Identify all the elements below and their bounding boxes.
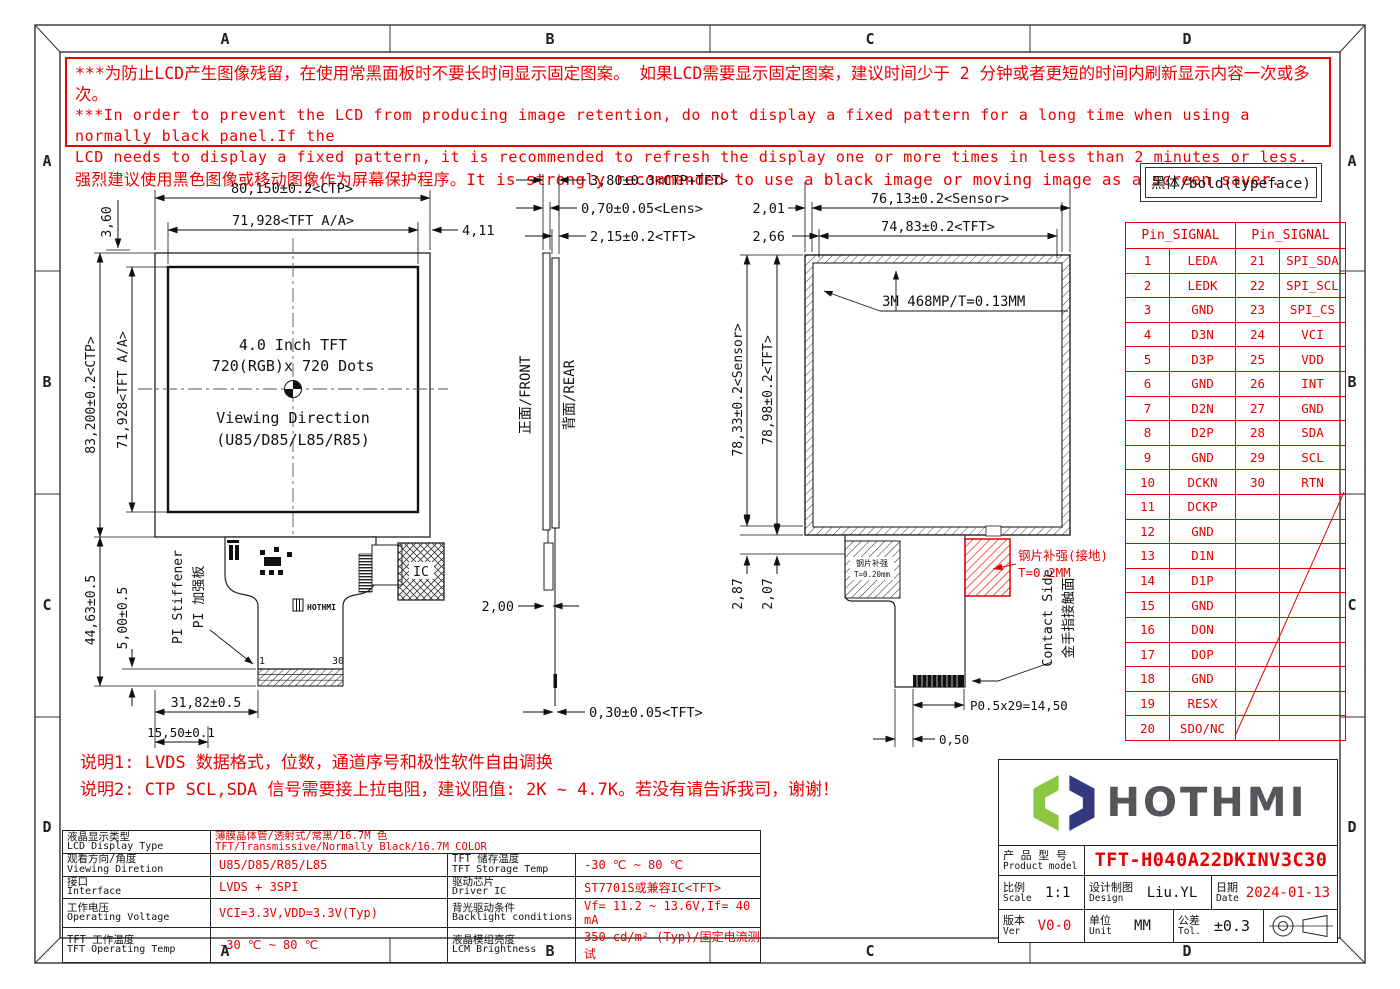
zone-left-a: A: [42, 152, 51, 170]
typeface-note: 黑体/bold(typeface): [1145, 167, 1317, 198]
svg-text:80,150±0.2<CTP>: 80,150±0.2<CTP>: [231, 181, 353, 197]
spec-label-en: TFT Storage Temp: [452, 865, 575, 876]
pin-signal: SDA: [1280, 421, 1346, 446]
pin-no: [1236, 667, 1280, 692]
ground-steel-block: [965, 539, 1010, 596]
pin-no: 8: [1126, 421, 1170, 446]
rear-view-drawing: 2,01 76,13±0.2<Sensor> 2,66 74,83±0.2<TF…: [700, 150, 1120, 770]
design-cell: 设计制图Design Liu.YL: [1084, 876, 1211, 909]
spec-value-cell: -30 ℃ ~ 80 ℃: [576, 854, 761, 877]
extension-lines: [740, 182, 1070, 554]
pin-table-header: Pin_SIGNAL Pin_SIGNAL: [1126, 223, 1346, 249]
pitch-dim-text: P0.5x29=14,50: [970, 698, 1068, 713]
ver-label-en: Ver: [1003, 926, 1025, 937]
projection-cell: [1263, 910, 1337, 942]
pin-header-left: Pin_SIGNAL: [1126, 223, 1236, 249]
note-2: 说明2: CTP SCL,SDA 信号需要接上拉电阻，建议阻值: 2K ~ 4.…: [80, 777, 839, 804]
spec-row: 观看方向/角度Viewing Diretion U85/D85/R85/L85 …: [63, 854, 761, 877]
spec-label-cell: TFT 储存温度TFT Storage Temp: [448, 854, 576, 877]
side-view-drawing: 3,80±0.3<CTP+TFT> 0,70±0.05<Lens> 2,15±0…: [460, 150, 740, 800]
ver-value: V0-0: [1025, 918, 1084, 934]
pin-no: [1236, 642, 1280, 667]
steel-inner-label-1: 钢片补强: [856, 558, 888, 568]
pin-row: 5D3P25VDD: [1126, 347, 1346, 372]
pin-row: 7D2N27GND: [1126, 396, 1346, 421]
pin-signal: D2P: [1170, 421, 1236, 446]
pin-no: [1236, 494, 1280, 519]
zone-left-b: B: [42, 373, 51, 391]
spec-label-en: Interface: [67, 887, 210, 898]
engineering-drawing-page: { "colors": {"red": "#e60000", "line": "…: [0, 0, 1400, 989]
rear-side-label: 背面/REAR: [562, 359, 578, 430]
design-label-cn: 设计制图: [1089, 882, 1133, 893]
unit-value: MM: [1112, 918, 1173, 934]
pin-signal: RTN: [1280, 470, 1346, 495]
pin-no: 4: [1126, 322, 1170, 347]
pin-no: [1236, 593, 1280, 618]
spec-row: 液晶显示类型 LCD Display Type 薄膜晶体管/透射式/常黑/16.…: [63, 831, 761, 854]
zone-right-a: A: [1347, 152, 1356, 170]
spec-value-cell: U85/D85/R85/L85: [211, 854, 448, 877]
pin-signal: GND: [1170, 667, 1236, 692]
zone-top-b: B: [545, 30, 554, 48]
spec-label-en: Backlight conditions: [452, 913, 575, 924]
date-label-en: Date: [1216, 893, 1239, 904]
retention-warning-box: ***为防止LCD产生图像残留，在使用常黑面板时不要长时间显示固定图案。 如果L…: [65, 57, 1331, 147]
zone-right-d: D: [1347, 818, 1356, 836]
pin-no: 14: [1126, 568, 1170, 593]
zone-top-c: C: [865, 30, 874, 48]
pin-row: 14D1P: [1126, 568, 1346, 593]
pin-no: 23: [1236, 298, 1280, 323]
pin-no: 10: [1126, 470, 1170, 495]
spec-table: 液晶显示类型 LCD Display Type 薄膜晶体管/透射式/常黑/16.…: [62, 830, 761, 963]
spec-label-cell: TFT 工作温度TFT Operating Temp: [63, 928, 211, 963]
logo-row: HOTHMI: [999, 760, 1337, 845]
product-label-cn: 产 品 型 号: [1003, 850, 1077, 861]
pin-signal: SPI_SCL: [1280, 273, 1346, 298]
board-connector: [359, 554, 372, 592]
pin-signal: [1280, 568, 1346, 593]
svg-text:2,15±0.2<TFT>: 2,15±0.2<TFT>: [590, 229, 696, 245]
display-resolution-label: 720(RGB)x 720 Dots: [212, 357, 375, 375]
contact-side-label-en: Contact Side: [1040, 569, 1056, 667]
spec-label-en: LCM Brightness: [452, 945, 575, 956]
pin-signal: GND: [1170, 519, 1236, 544]
stiffener-leader: [210, 630, 253, 664]
fpc-gold-connector: [258, 669, 343, 686]
svg-text:31,82±0.5: 31,82±0.5: [171, 696, 241, 711]
svg-text:2,00: 2,00: [481, 599, 514, 615]
zone-bottom-c: C: [865, 942, 874, 960]
contact-side-label-cn: 金手指接触面: [1060, 578, 1077, 659]
dimension-lines: [516, 180, 586, 712]
version-cell: 版本Ver V0-0: [999, 910, 1084, 942]
pin-row: 17DOP: [1126, 642, 1346, 667]
callout-leader-1: [824, 291, 880, 311]
pin-row: 19RESX: [1126, 691, 1346, 716]
ver-label-cn: 版本: [1003, 915, 1025, 926]
scale-design-date-row: 比例Scale 1:1 设计制图Design Liu.YL 日期Date 202…: [999, 875, 1337, 909]
pin-no: 30: [1236, 470, 1280, 495]
tol-label-cn: 公差: [1178, 915, 1201, 926]
pin-row: 10DCKN30RTN: [1126, 470, 1346, 495]
pin-signal: [1280, 667, 1346, 692]
pin-no: 19: [1126, 691, 1170, 716]
pin-signal: D3N: [1170, 322, 1236, 347]
svg-text:15,50±0.1: 15,50±0.1: [147, 725, 215, 740]
pin-signal: DON: [1170, 617, 1236, 642]
pin-no: [1236, 716, 1280, 741]
spec-label-en: TFT Operating Temp: [67, 945, 210, 956]
design-label-en: Design: [1089, 893, 1133, 904]
pin-signal: GND: [1170, 445, 1236, 470]
spec-value-cell: VCI=3.3V,VDD=3.3V(Typ): [211, 899, 448, 928]
pin-no: 7: [1126, 396, 1170, 421]
pin-signal: [1280, 617, 1346, 642]
date-value: 2024-01-13: [1239, 885, 1337, 901]
fpc-tail-outline: [225, 537, 376, 669]
pin-row: 13D1N: [1126, 544, 1346, 569]
svg-text:83,200±0.2<CTP>: 83,200±0.2<CTP>: [84, 336, 99, 454]
tape-callout-label: 3M 468MP/T=0.13MM: [882, 294, 1025, 310]
zone-top-d: D: [1182, 30, 1191, 48]
pin-row: 3GND23SPI_CS: [1126, 298, 1346, 323]
pin-no: 13: [1126, 544, 1170, 569]
svg-text:0,70±0.05<Lens>: 0,70±0.05<Lens>: [581, 201, 703, 217]
spec-label-cell: 液晶模组亮度LCM Brightness: [448, 928, 576, 963]
edge-dim-text: 0,50: [939, 732, 969, 747]
pin-signal: INT: [1280, 371, 1346, 396]
hothmi-logo-icon: [1029, 772, 1099, 834]
pin-signal: LEDA: [1170, 249, 1236, 274]
warning-line-cn: ***为防止LCD产生图像残留，在使用常黑面板时不要长时间显示固定图案。 如果L…: [75, 63, 1329, 105]
spec-value-line2: TFT/Transmissive/Normally Black/16.7M CO…: [215, 842, 760, 853]
pin-row: 8D2P28SDA: [1126, 421, 1346, 446]
design-value: Liu.YL: [1133, 885, 1211, 901]
spec-row: 工作电压Operating Voltage VCI=3.3V,VDD=3.3V(…: [63, 899, 761, 928]
tol-label-en: Tol.: [1178, 926, 1201, 937]
pin-signal: [1280, 716, 1346, 741]
pin-row: 1LEDA21SPI_SDA: [1126, 249, 1346, 274]
pin-row: 18GND: [1126, 667, 1346, 692]
pin-signal: DCKP: [1170, 494, 1236, 519]
pin-signal-table: Pin_SIGNAL Pin_SIGNAL 1LEDA21SPI_SDA 2LE…: [1125, 222, 1346, 741]
pin-row: 4D3N24VCI: [1126, 322, 1346, 347]
ctp-profile-bar: [543, 253, 550, 530]
product-label: 产 品 型 号 Product model: [999, 846, 1084, 875]
ver-unit-tol-row: 版本Ver V0-0 单位Unit MM 公差Tol. ±0.3: [999, 909, 1337, 942]
tolerance-cell: 公差Tol. ±0.3: [1173, 910, 1263, 942]
spec-value-cell: LVDS + 3SPI: [211, 876, 448, 899]
svg-text:5,00±0.5: 5,00±0.5: [116, 587, 131, 650]
gold-finger-profile: [554, 674, 558, 688]
pin-no: 6: [1126, 371, 1170, 396]
svg-text:74,83±0.2<TFT>: 74,83±0.2<TFT>: [881, 219, 995, 235]
svg-text:2,01: 2,01: [752, 201, 785, 217]
spec-label-cell: 工作电压Operating Voltage: [63, 899, 211, 928]
pin-signal: SPI_CS: [1280, 298, 1346, 323]
pin-no: 12: [1126, 519, 1170, 544]
pin-row: 12GND: [1126, 519, 1346, 544]
pin-header-right: Pin_SIGNAL: [1236, 223, 1346, 249]
centroid-symbol: [285, 381, 302, 398]
spec-value-cell: ST7701S或兼容IC<TFT>: [576, 876, 761, 899]
pin-signal: DCKN: [1170, 470, 1236, 495]
spec-label-en: LCD Display Type: [67, 842, 210, 853]
spec-label-en: Operating Voltage: [67, 913, 210, 924]
pin-signal: [1280, 593, 1346, 618]
pin-signal: SDO/NC: [1170, 716, 1236, 741]
pin-signal: [1280, 544, 1346, 569]
pin-no: 22: [1236, 273, 1280, 298]
pin-no: 5: [1126, 347, 1170, 372]
display-size-label: 4.0 Inch TFT: [239, 336, 347, 354]
date-cell: 日期Date 2024-01-13: [1211, 876, 1337, 909]
hothmi-logo-text: HOTHMI: [1107, 780, 1308, 826]
svg-text:44,63±0.5: 44,63±0.5: [84, 575, 99, 645]
tol-value: ±0.3: [1201, 917, 1263, 935]
pin-signal: DOP: [1170, 642, 1236, 667]
pin-no: [1236, 617, 1280, 642]
tft-profile-bar: [552, 258, 559, 528]
pin-no: 29: [1236, 445, 1280, 470]
pin-row: 6GND26INT: [1126, 371, 1346, 396]
zone-top-a: A: [220, 30, 229, 48]
zone-right-b: B: [1347, 373, 1356, 391]
spec-value-cell: 350 cd/m² (Typ)/固定电流测试: [576, 928, 761, 963]
svg-text:76,13±0.2<Sensor>: 76,13±0.2<Sensor>: [871, 191, 1009, 207]
pin-signal: GND: [1280, 396, 1346, 421]
viewing-direction-label: Viewing Direction: [216, 409, 370, 427]
svg-text:78,33±0.2<Sensor>: 78,33±0.2<Sensor>: [731, 323, 746, 456]
title-block: HOTHMI 产 品 型 号 Product model TFT-H040A22…: [998, 759, 1338, 943]
svg-text:2,87: 2,87: [731, 578, 746, 609]
pin-no: [1236, 519, 1280, 544]
front-view-drawing: 4.0 Inch TFT 720(RGB)x 720 Dots Viewing …: [60, 150, 500, 750]
notes-block: 说明1: LVDS 数据格式，位数，通道序号和极性软件自由调换 说明2: CTP…: [80, 750, 839, 804]
zone-right-c: C: [1347, 596, 1356, 614]
scale-cell: 比例Scale 1:1: [999, 876, 1084, 909]
svg-text:2,07: 2,07: [761, 578, 776, 609]
pin30-label: 30: [332, 656, 344, 667]
pin-signal: D1P: [1170, 568, 1236, 593]
pin-no: 26: [1236, 371, 1280, 396]
pin-signal: VDD: [1280, 347, 1346, 372]
pin-no: 25: [1236, 347, 1280, 372]
pin-no: 18: [1126, 667, 1170, 692]
svg-text:71,928<TFT A/A>: 71,928<TFT A/A>: [116, 331, 131, 449]
spec-value-cell: 薄膜晶体管/透射式/常黑/16.7M 色 TFT/Transmissive/No…: [211, 831, 761, 854]
spec-label-cell: 液晶显示类型 LCD Display Type: [63, 831, 211, 854]
note-1: 说明1: LVDS 数据格式，位数，通道序号和极性软件自由调换: [80, 750, 839, 777]
spec-label-en: Driver IC: [452, 887, 575, 898]
pin-no: 3: [1126, 298, 1170, 323]
pin-signal: D3P: [1170, 347, 1236, 372]
pin-row: 9GND29SCL: [1126, 445, 1346, 470]
pi-stiffener-label-en: PI Stiffener: [171, 550, 186, 644]
product-label-en: Product model: [1003, 861, 1077, 872]
date-label-cn: 日期: [1216, 882, 1239, 893]
pin-signal: [1280, 494, 1346, 519]
pin-no: [1236, 691, 1280, 716]
dimension-texts: 3,80±0.3<CTP+TFT> 0,70±0.05<Lens> 2,15±0…: [481, 173, 728, 721]
ic-label: IC: [413, 565, 429, 580]
pin-no: 17: [1126, 642, 1170, 667]
pin-row: 16DON: [1126, 617, 1346, 642]
pin-signal: GND: [1170, 371, 1236, 396]
pin-row: 11DCKP: [1126, 494, 1346, 519]
pin-no: 11: [1126, 494, 1170, 519]
spec-label-en: Viewing Diretion: [67, 865, 210, 876]
pin-signal: D2N: [1170, 396, 1236, 421]
spec-label-cell: 观看方向/角度Viewing Diretion: [63, 854, 211, 877]
svg-text:71,928<TFT A/A>: 71,928<TFT A/A>: [232, 213, 354, 229]
spec-row: TFT 工作温度TFT Operating Temp -30 ℃ ~ 80 ℃ …: [63, 928, 761, 963]
svg-text:3,60: 3,60: [100, 206, 115, 237]
product-model-value: TFT-H040A22DKINV3C30: [1095, 850, 1328, 871]
pin-signal: [1280, 642, 1346, 667]
pin-row: 15GND: [1126, 593, 1346, 618]
viewing-angles-label: (U85/D85/L85/R85): [216, 431, 370, 449]
front-side-label: 正面/FRONT: [518, 355, 534, 434]
scale-label-en: Scale: [1003, 893, 1032, 904]
zone-bottom-d: D: [1182, 942, 1191, 960]
pin-signal: [1280, 691, 1346, 716]
spec-value-cell: -30 ℃ ~ 80 ℃: [211, 928, 448, 963]
pin-no: 9: [1126, 445, 1170, 470]
projection-symbol-icon: [1267, 911, 1335, 941]
gold-fingers: [913, 675, 964, 687]
steel-inner-label-2: T=0.20mm: [854, 570, 891, 579]
fpc-logo-text: HOTHMI: [307, 603, 336, 612]
pin-signal: RESX: [1170, 691, 1236, 716]
warning-line-en-1: ***In order to prevent the LCD from prod…: [75, 105, 1329, 147]
pin-no: 2: [1126, 273, 1170, 298]
pin-row: 2LEDK22SPI_SCL: [1126, 273, 1346, 298]
svg-text:78,98±0.2<TFT>: 78,98±0.2<TFT>: [761, 335, 776, 445]
pi-stiffener-label-cn: PI 加强板: [192, 566, 207, 628]
pin-no: 28: [1236, 421, 1280, 446]
stiffener-profile: [544, 543, 553, 590]
pin-signal: GND: [1170, 593, 1236, 618]
spec-label-cell: 驱动芯片Driver IC: [448, 876, 576, 899]
pin-no: 1: [1126, 249, 1170, 274]
pin-signal: VCI: [1280, 322, 1346, 347]
scale-label-cn: 比例: [1003, 882, 1032, 893]
svg-text:0,30±0.05<TFT>: 0,30±0.05<TFT>: [589, 705, 703, 721]
pin-signal: SPI_SDA: [1280, 249, 1346, 274]
unit-label-cn: 单位: [1089, 915, 1112, 926]
pin-no: [1236, 568, 1280, 593]
zone-left-c: C: [42, 596, 51, 614]
spec-label-cell: 接口Interface: [63, 876, 211, 899]
pin-no: 27: [1236, 396, 1280, 421]
pin-no: 21: [1236, 249, 1280, 274]
pin-signal: LEDK: [1170, 273, 1236, 298]
pin-no: 20: [1126, 716, 1170, 741]
pin-signal: GND: [1170, 298, 1236, 323]
pin-no: 16: [1126, 617, 1170, 642]
pin1-label: 1: [259, 656, 265, 667]
pin-signal: D1N: [1170, 544, 1236, 569]
fpc-notch: [986, 526, 1001, 536]
pin-signal: SCL: [1280, 445, 1346, 470]
spec-row: 接口Interface LVDS + 3SPI 驱动芯片Driver IC ST…: [63, 876, 761, 899]
spec-label-cell: 背光驱动条件Backlight conditions: [448, 899, 576, 928]
pin-no: 15: [1126, 593, 1170, 618]
unit-cell: 单位Unit MM: [1084, 910, 1173, 942]
product-model-row: 产 品 型 号 Product model TFT-H040A22DKINV3C…: [999, 845, 1337, 875]
unit-label-en: Unit: [1089, 926, 1112, 937]
pin-no: [1236, 544, 1280, 569]
zone-left-d: D: [42, 818, 51, 836]
pin-row: 20SDO/NC: [1126, 716, 1346, 741]
product-model-cell: TFT-H040A22DKINV3C30: [1084, 846, 1337, 875]
pin-no: 24: [1236, 322, 1280, 347]
ground-steel-label: 钢片补强(接地): [1018, 548, 1108, 563]
pin-signal: [1280, 519, 1346, 544]
extension-lines: [543, 174, 559, 254]
typeface-note-box: 黑体/bold(typeface): [1140, 163, 1322, 202]
svg-text:2,66: 2,66: [752, 229, 785, 245]
spec-value-cell: Vf= 11.2 ~ 13.6V,If= 40 mA: [576, 899, 761, 928]
scale-value: 1:1: [1032, 885, 1084, 901]
